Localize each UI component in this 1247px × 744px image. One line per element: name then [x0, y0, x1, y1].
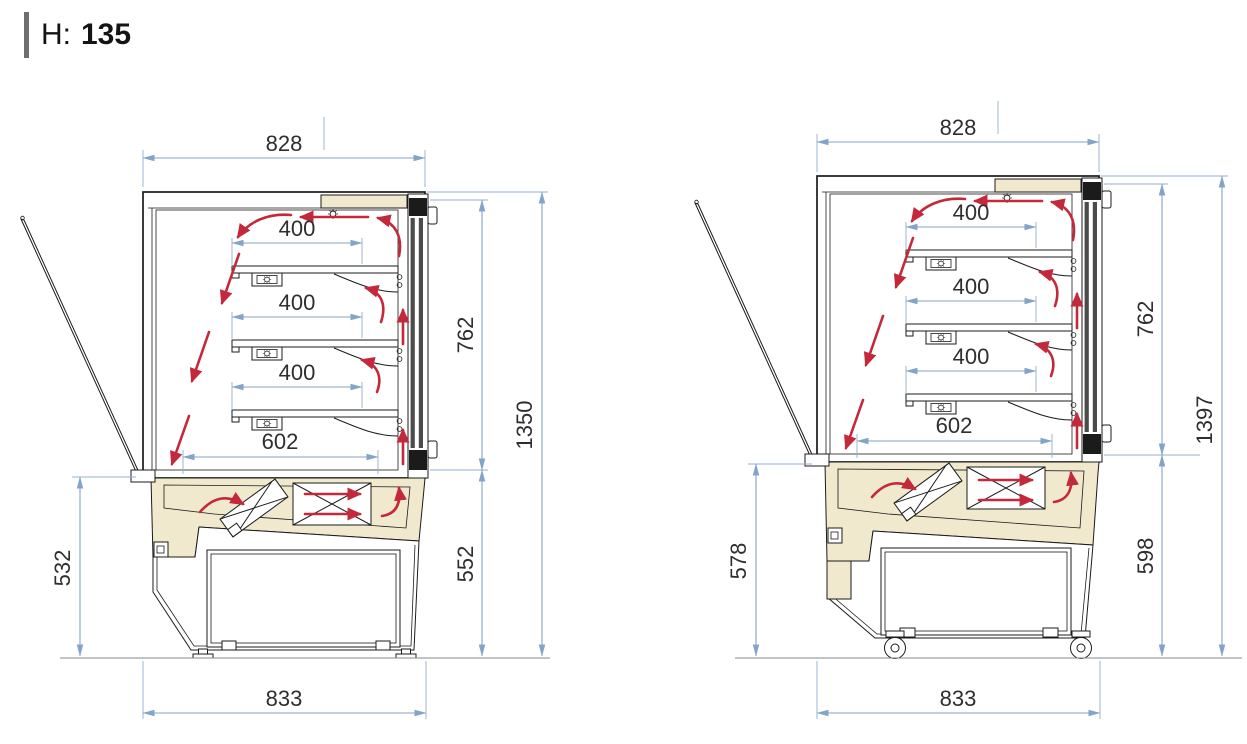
- dim-shelf-1: 400: [279, 216, 316, 241]
- dim-lower-front: 532: [50, 550, 75, 587]
- dim-shelf-2: 400: [279, 290, 316, 315]
- dim-shelf-3: 400: [953, 344, 990, 369]
- dim-inner-bottom: 602: [936, 413, 973, 438]
- dim-inner-bottom: 602: [262, 429, 299, 454]
- base-section-left: [131, 470, 425, 658]
- dim-lower-rear: 552: [453, 546, 478, 583]
- dim-top-width: 828: [266, 131, 303, 156]
- dim-top-width: 828: [940, 115, 977, 140]
- dim-base-depth: 833: [266, 686, 303, 711]
- view-left-feet: 828 400 400 400 602 762 552 1350 532 833: [21, 117, 550, 719]
- dim-glass-height: 762: [1133, 301, 1158, 338]
- compressor-compartment: [207, 550, 400, 647]
- dim-overall-height: 1350: [512, 401, 537, 450]
- dim-shelf-1: 400: [953, 200, 990, 225]
- dim-base-depth: 833: [940, 686, 977, 711]
- dim-lower-rear: 598: [1133, 538, 1158, 575]
- dim-shelf-3: 400: [279, 360, 316, 385]
- dim-glass-height: 762: [453, 317, 478, 354]
- technical-drawing: 828 400 400 400 602 762 552 1350 532 833: [0, 0, 1247, 744]
- dim-lower-front: 578: [726, 543, 751, 580]
- compressor-compartment: [881, 548, 1071, 635]
- base-section-right: [805, 454, 1099, 659]
- dim-overall-height: 1397: [1192, 396, 1217, 445]
- view-right-casters: 828 400 400 400 602 762 598 1397 578 833: [695, 101, 1242, 719]
- dim-shelf-2: 400: [953, 274, 990, 299]
